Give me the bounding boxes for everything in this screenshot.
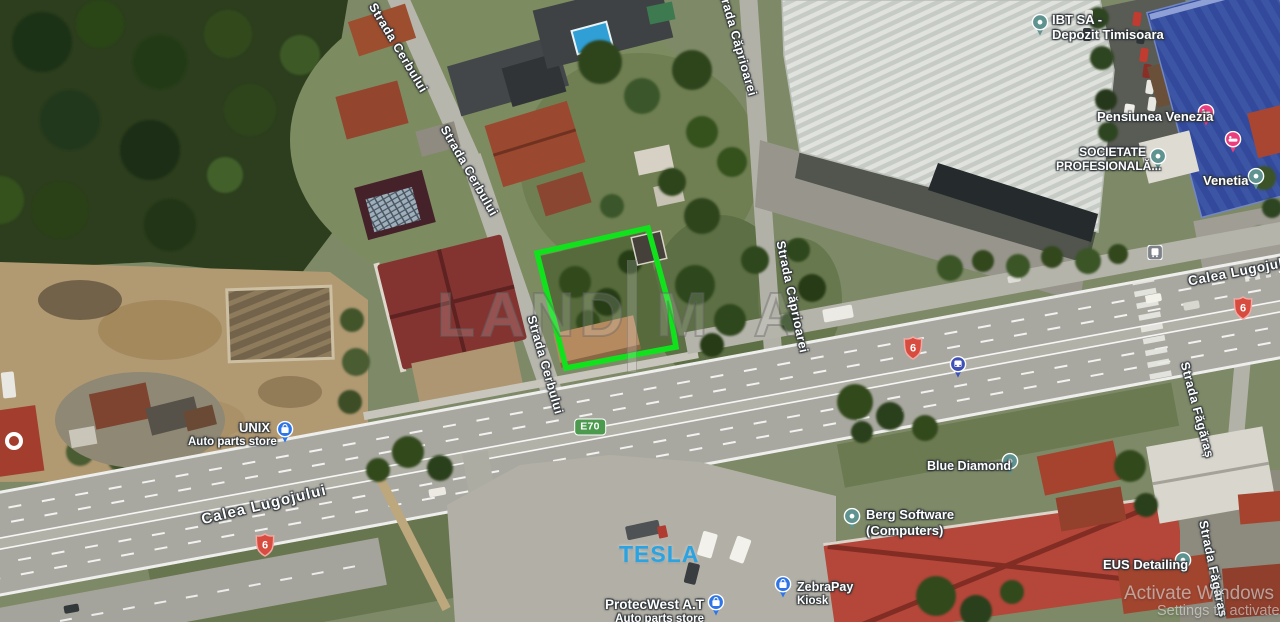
poi-label-venetia[interactable]: Venetia <box>1203 174 1249 189</box>
dn6-shield-1: 6 <box>902 336 924 360</box>
e70-shield: E70 <box>574 419 606 436</box>
landmark-watermark-right: MA <box>656 280 844 351</box>
poi-label-protecwest[interactable]: ProtecWest A.T Auto parts store <box>596 597 704 622</box>
svg-text:6: 6 <box>262 540 268 552</box>
poi-pin-venetia[interactable] <box>1247 168 1265 191</box>
poi-pin-ibt[interactable] <box>1031 14 1049 37</box>
walled-garden <box>227 286 333 362</box>
satellite-imagery <box>0 0 1280 622</box>
bus-station-icon[interactable] <box>1148 245 1163 265</box>
poi-label-unix[interactable]: UNIX Auto parts store <box>188 421 270 449</box>
poi-label-societate[interactable]: SOCIETATE PROFESIONALĂ... <box>1056 146 1146 173</box>
poi-label-eus[interactable]: EUS Detailing <box>1103 558 1188 573</box>
lodging-pin-2[interactable] <box>1224 131 1242 154</box>
poi-label-blue-diamond[interactable]: Blue Diamond <box>927 459 1011 473</box>
svg-text:6: 6 <box>1240 303 1246 315</box>
poi-label-berg[interactable]: Berg Software (Computers) <box>866 507 954 538</box>
satellite-map[interactable]: LAND MA Strada Cerbului Strada Cerbului … <box>0 0 1280 622</box>
bus-stop-pin[interactable] <box>949 356 967 379</box>
dn6-shield-2: 6 <box>1232 296 1254 320</box>
poi-label-ibt[interactable]: IBT SA - Depozit Timisoara <box>1052 13 1164 43</box>
shopping-pin-protecwest[interactable] <box>707 594 725 617</box>
activate-windows-subtext: Settings to activate Wi <box>1157 603 1280 619</box>
dn6-shield-3: 6 <box>254 533 276 557</box>
shopping-pin-zebrapay[interactable] <box>774 576 792 599</box>
activate-windows-text: Activate Windows <box>1124 583 1274 605</box>
poi-pin-berg[interactable] <box>843 508 861 531</box>
svg-text:6: 6 <box>910 343 916 355</box>
shopping-pin-unix[interactable] <box>276 421 294 444</box>
poi-label-zebrapay[interactable]: ZebraPay Kiosk <box>797 580 853 608</box>
poi-label-venezia[interactable]: Pensiunea Venezia <box>1097 110 1213 125</box>
poi-label-tesla[interactable]: TESLA <box>619 541 699 568</box>
landmark-watermark-divider <box>627 260 637 372</box>
